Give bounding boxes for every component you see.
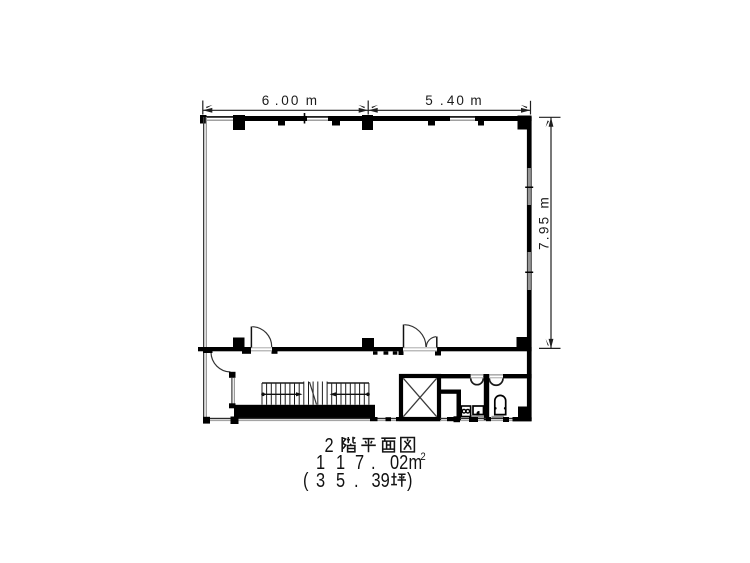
svg-text:(: (	[303, 468, 309, 491]
svg-text:39: 39	[372, 468, 390, 491]
svg-text:02: 02	[390, 450, 408, 473]
svg-text:3: 3	[316, 468, 325, 491]
svg-text:2: 2	[325, 433, 334, 456]
svg-text:.: .	[354, 468, 359, 491]
svg-text:): )	[407, 468, 412, 491]
svg-text:2: 2	[421, 451, 426, 463]
svg-text:5: 5	[336, 468, 345, 491]
svg-text:7.95 m: 7.95 m	[536, 195, 551, 250]
